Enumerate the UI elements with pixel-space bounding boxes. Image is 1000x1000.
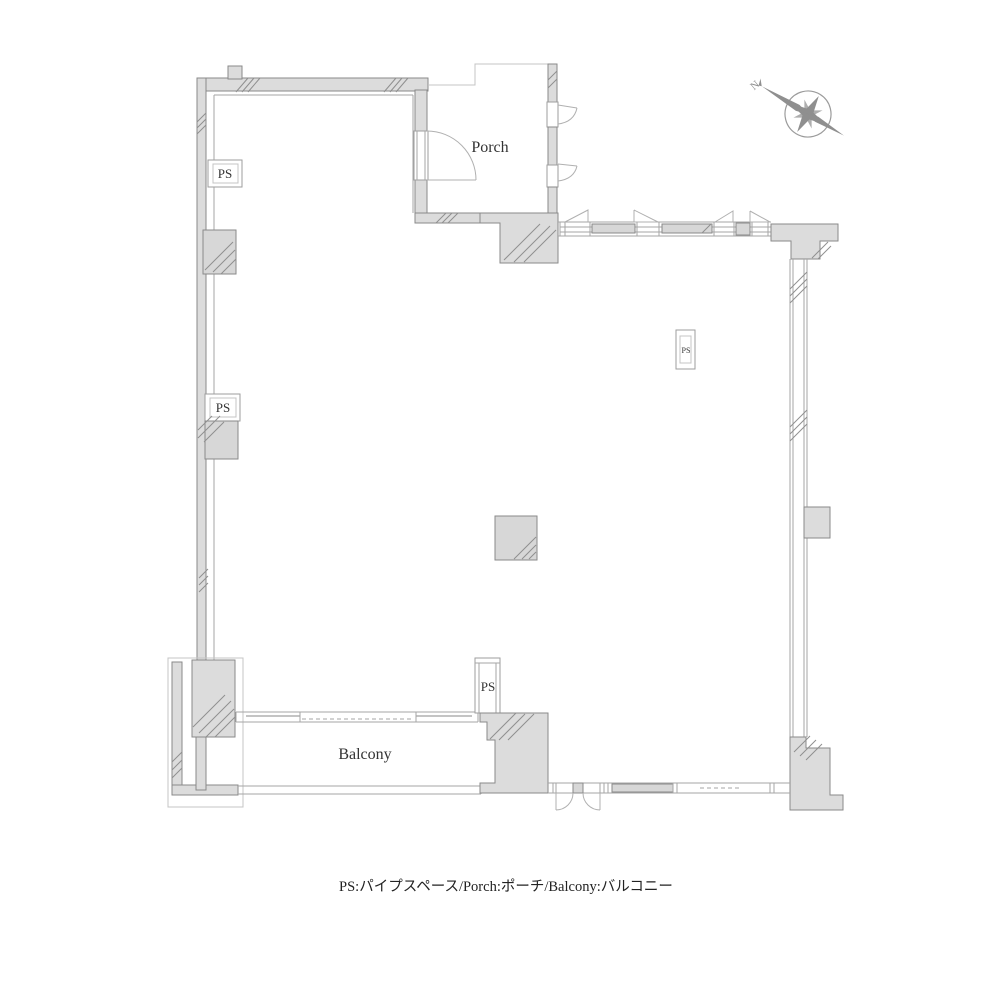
north-window-wall [558, 210, 771, 236]
porch-label: Porch [471, 139, 508, 156]
pipe-space-top-left: PS [203, 160, 242, 274]
outer-walls [197, 66, 481, 662]
porch-vent-flaps [558, 105, 577, 181]
east-wall [771, 224, 843, 810]
balcony-label: Balcony [338, 746, 391, 763]
ps-label-top-left: PS [218, 166, 232, 181]
floor-plan-page: PS PS [0, 0, 1000, 1000]
balcony: Balcony [168, 658, 481, 807]
south-wall [548, 783, 790, 810]
porch: Porch [414, 64, 577, 263]
pipe-space-right: PS [676, 330, 695, 369]
ps-label-bottom: PS [481, 679, 495, 694]
terrace-double-doors [556, 783, 600, 810]
ps-label-right: PS [682, 346, 691, 355]
window-swing-triangles [565, 210, 770, 222]
interior-face-lines [214, 95, 413, 712]
floor-plan-drawing: PS PS [0, 0, 1000, 1000]
ps-label-mid-left: PS [216, 400, 230, 415]
legend-text: PS:パイプスペース/Porch:ポーチ/Balcony:バルコニー [339, 878, 673, 895]
wall-hatches [197, 78, 408, 592]
entrance-door [427, 131, 476, 180]
compass-rose: N [746, 64, 856, 155]
pipe-space-bottom: PS [475, 658, 548, 793]
center-pillar [495, 516, 537, 560]
balcony-sliding-doors [236, 712, 478, 722]
